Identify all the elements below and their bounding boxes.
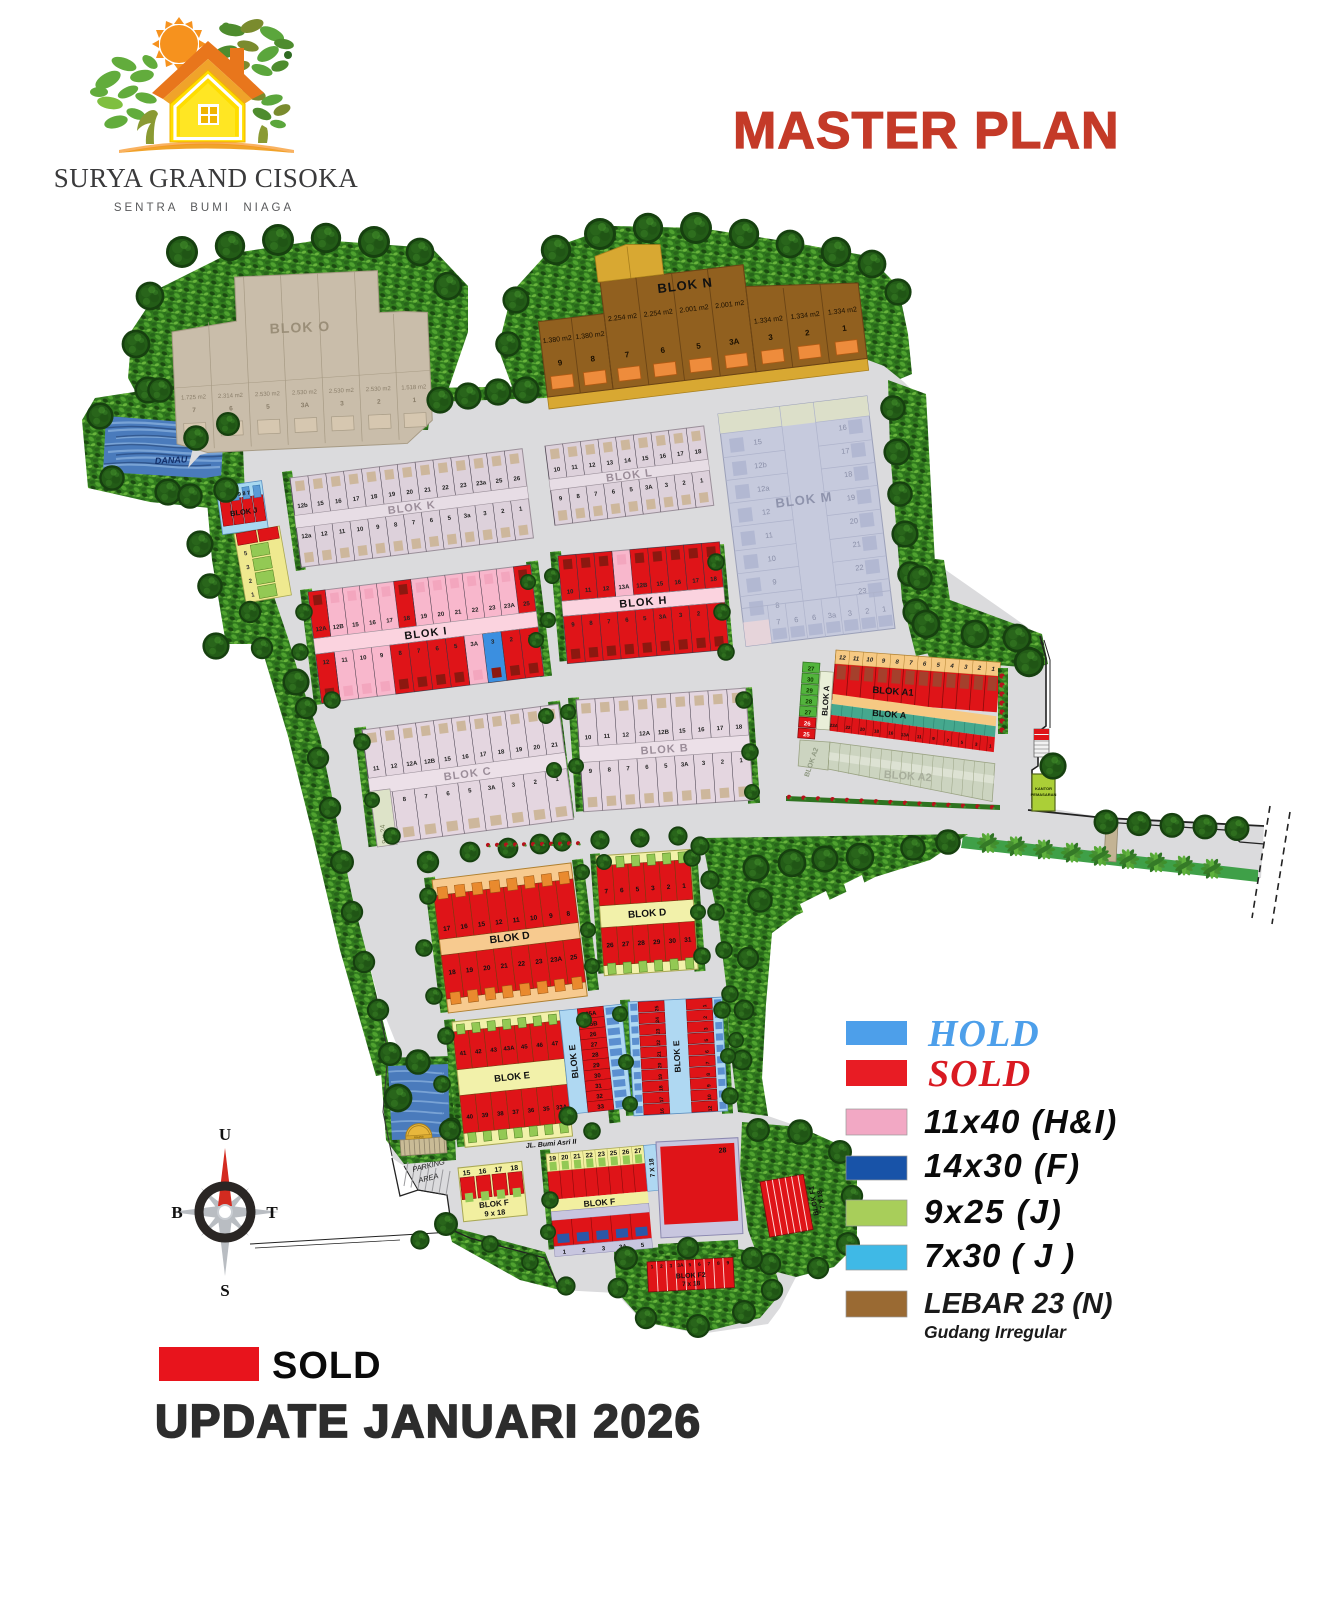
svg-text:31: 31 [595,1083,603,1090]
svg-text:12B: 12B [636,583,648,590]
svg-text:38: 38 [497,1111,505,1118]
svg-text:32: 32 [596,1094,604,1101]
svg-text:BLOK O: BLOK O [269,318,330,337]
svg-text:2.530 m2: 2.530 m2 [292,389,318,396]
svg-text:22: 22 [855,563,864,573]
svg-text:KANTOR: KANTOR [1035,786,1052,791]
svg-text:15: 15 [478,921,486,929]
svg-text:11x40 (H&I): 11x40 (H&I) [924,1103,1118,1140]
svg-text:35: 35 [543,1106,551,1113]
svg-text:36: 36 [527,1108,535,1115]
svg-text:12: 12 [622,732,630,738]
svg-text:7x30 ( J ): 7x30 ( J ) [924,1237,1075,1274]
svg-text:30: 30 [807,677,815,683]
svg-text:1: 1 [702,1004,708,1007]
svg-text:HOLD: HOLD [927,1013,1040,1055]
svg-text:18: 18 [874,728,880,733]
svg-text:29: 29 [653,939,661,947]
svg-text:12: 12 [602,586,610,593]
svg-text:12: 12 [495,919,503,927]
svg-text:17: 17 [841,446,850,456]
svg-text:12: 12 [708,1105,714,1111]
svg-text:11: 11 [853,656,860,662]
svg-text:28: 28 [592,1052,600,1059]
svg-text:3A: 3A [301,402,310,409]
svg-text:20: 20 [849,516,858,526]
svg-text:12: 12 [839,655,847,662]
svg-text:3A: 3A [488,785,497,792]
svg-text:43: 43 [490,1047,498,1054]
svg-text:10: 10 [585,735,593,741]
svg-text:42: 42 [475,1049,483,1056]
svg-text:12b: 12b [754,460,768,470]
svg-text:3A: 3A [729,337,740,347]
svg-text:U: U [219,1125,231,1144]
svg-text:6: 6 [705,1050,711,1053]
svg-text:22: 22 [656,1039,662,1045]
svg-text:9x25 (J): 9x25 (J) [924,1193,1063,1230]
svg-text:2: 2 [377,399,381,406]
svg-text:22: 22 [845,725,851,730]
svg-text:20: 20 [561,1154,569,1162]
svg-text:28: 28 [718,1147,726,1154]
svg-text:12A: 12A [639,731,651,738]
svg-text:26: 26 [590,1032,598,1039]
svg-text:2.530 m2: 2.530 m2 [255,391,281,398]
svg-text:3A: 3A [645,485,654,492]
svg-text:45: 45 [521,1044,529,1051]
svg-text:18: 18 [735,724,743,730]
svg-text:46: 46 [536,1043,544,1050]
svg-text:18: 18 [658,1085,664,1091]
svg-text:40: 40 [466,1114,474,1121]
svg-text:12: 12 [761,507,770,517]
svg-text:25: 25 [570,954,578,962]
svg-text:18: 18 [710,577,718,584]
svg-text:1.725 m2: 1.725 m2 [181,394,207,401]
svg-text:31: 31 [684,937,692,945]
svg-text:30: 30 [594,1073,602,1080]
svg-text:27: 27 [591,1042,599,1049]
svg-text:5: 5 [704,1038,710,1041]
svg-text:19: 19 [846,493,855,503]
svg-text:18: 18 [448,969,456,977]
svg-text:25: 25 [803,732,811,738]
svg-text:10: 10 [567,589,575,596]
svg-text:20: 20 [860,727,866,732]
svg-text:7: 7 [705,1061,711,1064]
svg-text:43A: 43A [503,1046,515,1053]
svg-text:25: 25 [654,1005,660,1011]
svg-text:18: 18 [844,469,853,479]
svg-text:26: 26 [622,1149,630,1157]
svg-text:10: 10 [707,1094,713,1100]
svg-text:11: 11 [765,530,774,540]
svg-text:15: 15 [753,437,762,447]
svg-text:16: 16 [478,1168,487,1176]
svg-text:1: 1 [412,397,416,404]
svg-text:BLOK E: BLOK E [671,1040,683,1073]
svg-text:21: 21 [500,962,508,970]
svg-text:UPDATE JANUARI 2026: UPDATE JANUARI 2026 [155,1395,702,1447]
svg-text:22: 22 [518,960,526,968]
svg-text:19: 19 [466,967,474,975]
svg-text:16: 16 [888,730,894,735]
svg-text:SOLD: SOLD [272,1345,382,1387]
svg-text:21: 21 [573,1153,581,1161]
svg-text:11: 11 [604,734,611,740]
svg-text:MASTER PLAN: MASTER PLAN [733,102,1120,160]
svg-text:15: 15 [679,728,687,734]
svg-text:3A: 3A [681,762,690,769]
svg-text:29: 29 [806,688,814,694]
svg-text:30: 30 [668,938,676,946]
svg-text:16: 16 [838,423,847,433]
svg-text:2.530 m2: 2.530 m2 [366,386,392,393]
svg-text:10: 10 [866,657,874,664]
svg-text:15: 15 [656,581,664,588]
svg-text:17: 17 [717,726,725,732]
svg-text:PEMASARAN: PEMASARAN [1031,792,1057,797]
svg-text:27: 27 [622,941,630,949]
svg-text:12B: 12B [658,730,670,737]
svg-text:2: 2 [703,1016,709,1019]
svg-text:Gudang Irregular: Gudang Irregular [924,1322,1067,1342]
svg-text:LEBAR 23 (N): LEBAR 23 (N) [924,1288,1113,1320]
svg-text:11: 11 [512,917,520,925]
svg-text:SOLD: SOLD [928,1053,1031,1095]
svg-text:21: 21 [852,539,861,549]
svg-text:16: 16 [460,923,468,931]
svg-text:8: 8 [706,1073,712,1076]
svg-text:SENTRA BUMI NIAGA: SENTRA BUMI NIAGA [114,202,294,214]
svg-text:25: 25 [610,1150,618,1158]
svg-text:41: 41 [459,1051,467,1058]
svg-text:27: 27 [807,666,815,672]
svg-text:2.314 m2: 2.314 m2 [218,393,244,400]
svg-text:27: 27 [804,710,812,716]
svg-text:16: 16 [674,580,682,587]
svg-text:26: 26 [606,942,614,950]
svg-text:16: 16 [660,1108,666,1114]
svg-text:SURYA GRAND CISOKA: SURYA GRAND CISOKA [54,163,359,193]
svg-text:28: 28 [805,699,813,705]
svg-text:19: 19 [658,1074,664,1080]
svg-text:23: 23 [655,1028,661,1034]
svg-text:10: 10 [530,914,538,922]
svg-text:39: 39 [481,1113,489,1120]
svg-text:3: 3 [340,400,344,407]
svg-text:11: 11 [585,588,593,595]
svg-text:17: 17 [692,578,700,585]
svg-text:10: 10 [767,554,776,564]
svg-text:3A: 3A [677,1263,684,1269]
svg-text:7 x 18: 7 x 18 [682,1280,701,1288]
svg-text:27: 27 [634,1148,642,1156]
svg-text:20: 20 [483,965,491,973]
svg-text:6: 6 [229,405,233,412]
svg-text:17: 17 [443,925,451,933]
svg-text:16: 16 [698,727,706,733]
svg-text:23A: 23A [550,956,563,964]
svg-text:21: 21 [657,1051,663,1057]
svg-text:18: 18 [510,1165,519,1173]
svg-text:20: 20 [657,1062,663,1068]
svg-text:5: 5 [266,404,270,411]
svg-text:13A: 13A [618,584,630,591]
svg-text:24: 24 [655,1017,661,1023]
svg-text:23: 23 [535,958,543,966]
svg-text:19: 19 [549,1155,557,1163]
svg-text:29: 29 [593,1063,601,1070]
svg-text:14x30 (F): 14x30 (F) [924,1147,1081,1184]
svg-text:T: T [266,1203,278,1222]
svg-text:B: B [171,1203,182,1222]
svg-text:12a: 12a [757,483,771,494]
svg-text:3A: 3A [470,641,479,648]
svg-text:3: 3 [703,1027,709,1030]
svg-text:28: 28 [637,940,645,948]
svg-text:7: 7 [192,407,196,414]
svg-text:37: 37 [512,1109,520,1116]
svg-text:47: 47 [551,1041,559,1048]
svg-text:23: 23 [597,1151,605,1159]
svg-text:15: 15 [462,1170,471,1178]
svg-text:33: 33 [597,1104,605,1111]
svg-text:26: 26 [804,721,812,727]
svg-text:9: 9 [706,1084,712,1087]
svg-text:DANAU: DANAU [155,454,188,466]
svg-text:S: S [220,1281,229,1300]
svg-text:2.530 m2: 2.530 m2 [329,388,355,395]
svg-text:17: 17 [659,1096,665,1102]
svg-text:11: 11 [917,734,923,739]
svg-text:1.518 m2: 1.518 m2 [401,384,427,391]
svg-text:22: 22 [585,1152,593,1160]
svg-text:17: 17 [494,1166,503,1174]
svg-text:3A: 3A [659,614,668,621]
